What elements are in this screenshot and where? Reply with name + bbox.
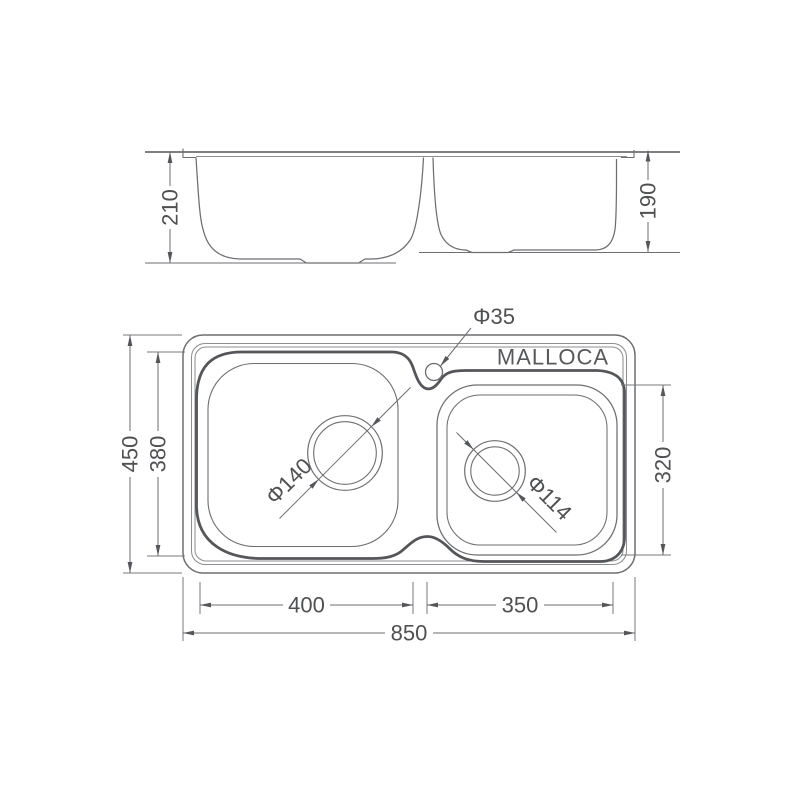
dimension-label-190: 190 [636,183,661,220]
dimension-left-bowl-width: 380 [146,352,186,556]
sink-rim-line-inner [195,347,623,561]
left-drain: Φ140 [261,388,411,519]
diameter-line [319,427,372,480]
dimension-label-380: 380 [146,436,171,473]
dimension-right-bowl-depth: 190 [636,151,661,253]
left-bowl-inner-edge [208,364,398,547]
dimension-label-400: 400 [288,593,325,618]
dimension-label-350: 350 [502,593,539,618]
faucet-hole [426,364,443,381]
dimension-label-450: 450 [118,436,143,473]
plan-view: MALLOCA Φ35 Φ140 Φ114 450 [118,304,676,646]
sink-technical-drawing-page: 210 190 MALLOCA Φ35 Φ140 [0,0,800,800]
dimension-right-bowl-length: 350 [427,582,613,618]
dimension-label-320: 320 [651,447,676,484]
sink-rim-line-outer [192,344,627,565]
side-elevation-view: 210 190 [145,149,680,264]
diameter-line [474,450,517,493]
technical-drawing: 210 190 MALLOCA Φ35 Φ140 [0,0,800,800]
diameter-line [371,388,410,427]
diameter-line [457,433,474,450]
dimension-overall-length: 850 [183,577,635,646]
brand-logo-text: MALLOCA [497,345,609,370]
dimension-label-210: 210 [158,189,183,226]
dimension-left-bowl-length: 400 [200,582,413,618]
left-rim-step [183,149,196,158]
right-bowl-outer-edge [437,385,617,555]
basin-depression-outline [197,352,625,562]
right-drain-diameter-label: Φ114 [522,470,577,525]
right-drain: Φ114 [457,433,577,533]
left-bowl-profile [196,158,424,264]
dimension-left-bowl-depth: 210 [158,152,183,263]
dimension-right-bowl-width: 320 [621,385,676,555]
right-bowl-profile [433,158,617,253]
dimension-label-850: 850 [391,621,428,646]
faucet-hole-label: Φ35 [473,304,515,329]
